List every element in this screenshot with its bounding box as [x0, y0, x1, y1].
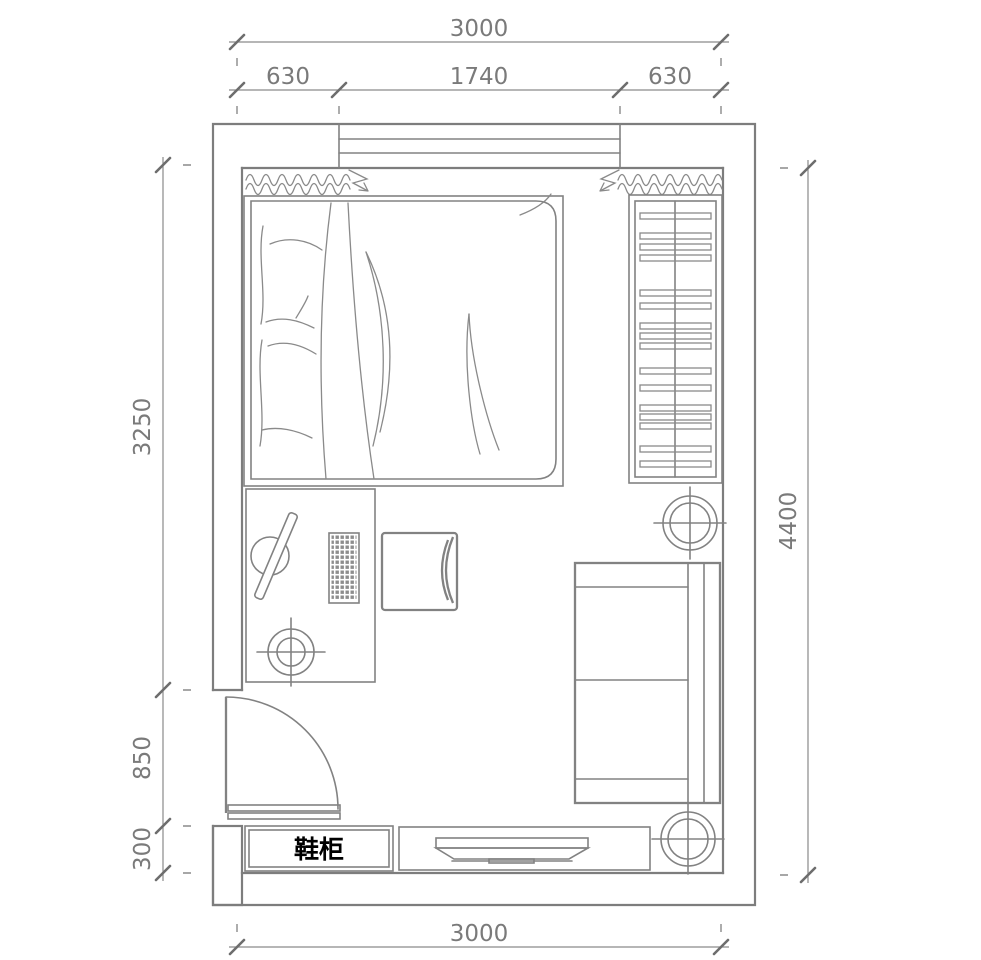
- stool-bottom: [652, 804, 724, 874]
- door-pier-bottom: [213, 826, 242, 905]
- dimension-top-total: 3000: [229, 16, 729, 66]
- desk: [246, 489, 375, 686]
- dimension-left: 3250 850 300: [130, 157, 191, 881]
- tv: [436, 838, 588, 863]
- desk-round-object: [257, 618, 325, 686]
- curtain-left: [246, 170, 368, 195]
- dim-text-right-total: 4400: [776, 492, 802, 551]
- dim-text-top-total: 3000: [450, 16, 509, 42]
- door-swing-arc: [226, 697, 338, 809]
- dim-text-left-seg1: 3250: [130, 398, 156, 457]
- tv-cabinet: [399, 827, 650, 870]
- dim-text-top-seg1: 630: [266, 64, 310, 90]
- bed: [244, 194, 563, 486]
- dim-text-top-seg2: 1740: [450, 64, 509, 90]
- door: [226, 697, 340, 819]
- wardrobe: [629, 195, 722, 483]
- dim-text-bottom-total: 3000: [450, 921, 509, 947]
- dimension-top-segments: 630 1740 630: [229, 64, 729, 114]
- curtain-arrow-icon: [600, 170, 619, 191]
- shoe-cabinet-label: 鞋柜: [294, 835, 344, 864]
- dim-text-top-seg3: 630: [648, 64, 692, 90]
- shoe-cabinet: 鞋柜: [245, 826, 393, 871]
- bed-mattress: [251, 201, 556, 479]
- dimension-right: 4400: [776, 160, 815, 883]
- chair: [382, 533, 457, 610]
- window: [339, 124, 620, 168]
- monitor: [251, 512, 298, 600]
- dim-text-left-seg3: 300: [130, 827, 156, 871]
- sofa: [575, 563, 720, 803]
- curtain-right: [600, 170, 722, 195]
- curtain-arrow-icon: [349, 170, 368, 191]
- door-threshold: [228, 805, 340, 811]
- stool-top: [654, 487, 726, 559]
- door-threshold: [228, 813, 340, 819]
- dimension-bottom: 3000: [229, 921, 729, 954]
- dim-text-left-seg2: 850: [130, 736, 156, 780]
- floor-plan-canvas: 鞋柜 3000 630 1740 630 3250 850 300: [0, 0, 981, 960]
- floor-plan-drawing: 鞋柜 3000 630 1740 630 3250 850 300: [0, 0, 981, 960]
- keyboard: [329, 533, 359, 603]
